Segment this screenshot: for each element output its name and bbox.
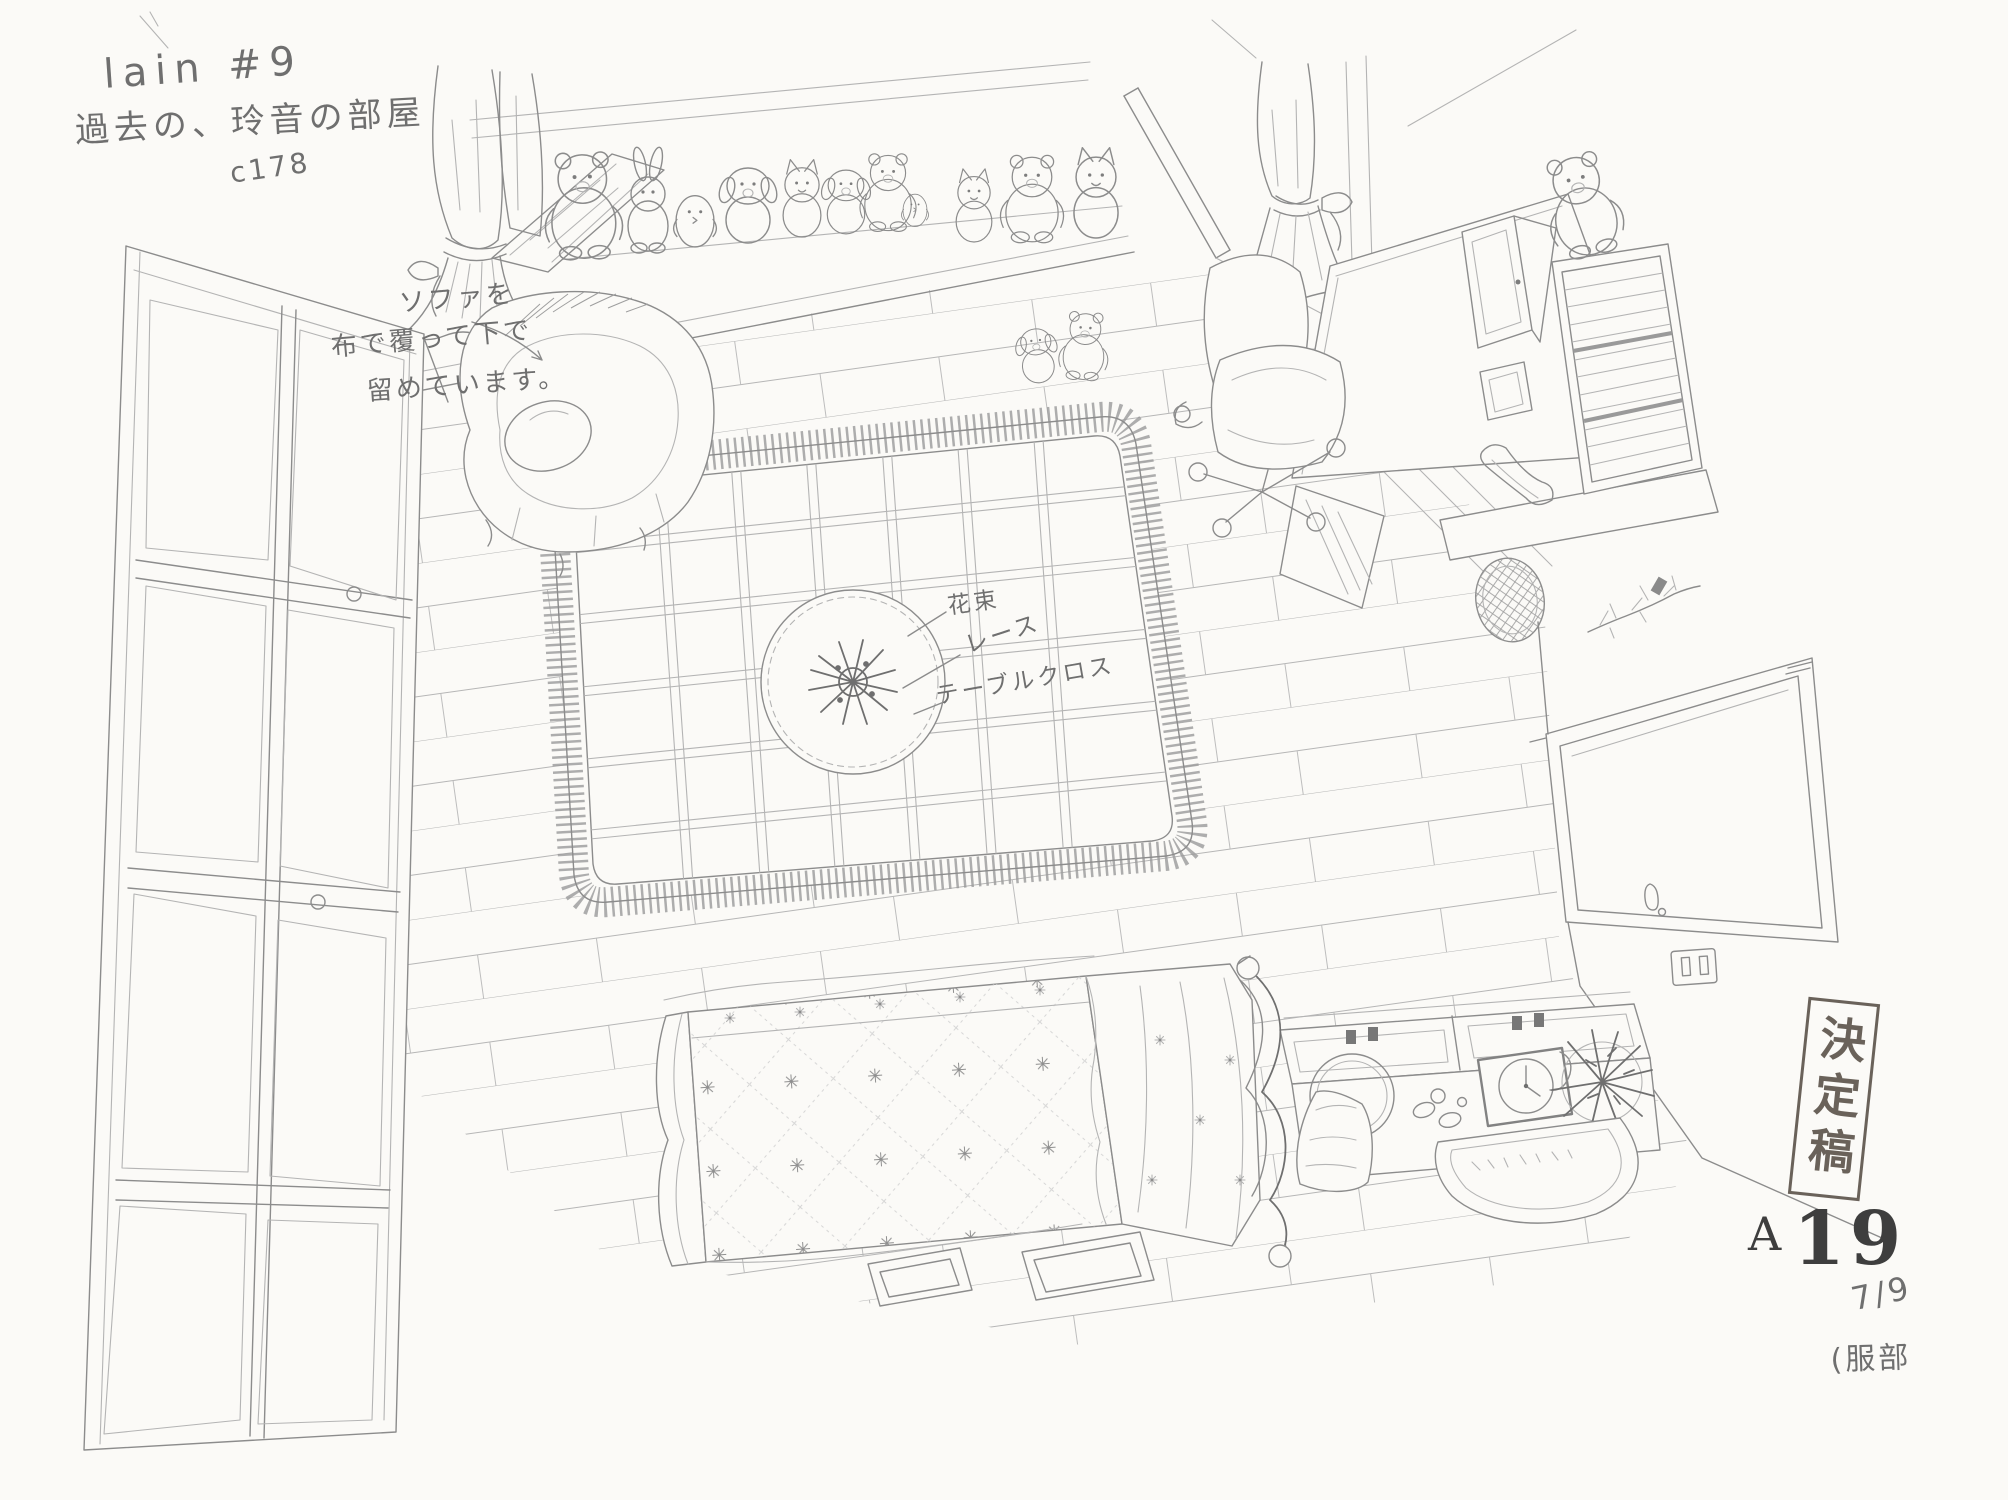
page-letter: A [1748,1207,1781,1261]
room-layout-drawing [0,0,2008,1500]
signature: (服部 [1830,1341,1912,1378]
chair-seat [1211,345,1345,469]
lid-handle [1346,1030,1356,1044]
dried-branch [1588,576,1700,638]
paper-scratches [140,12,168,48]
alarm-clock [1478,1048,1572,1126]
photo-frame [1480,362,1532,420]
branch-knot [1651,577,1668,596]
page-num: 19 [1793,1196,1906,1282]
desk-base [1440,470,1718,560]
lid-handle [1512,1016,1522,1030]
wall-outlet [1671,949,1717,986]
closet-wall [84,246,424,1450]
page-number: A19 [1748,1196,1906,1282]
open-door [1530,658,1838,942]
layout-sheet: lain #9 過去の、玲音の部屋 c178 ソファを 布で覆って下で 留めてい… [0,0,2008,1500]
lid-handle [1534,1013,1544,1027]
lid-handle [1368,1027,1378,1041]
round-table [761,590,945,774]
